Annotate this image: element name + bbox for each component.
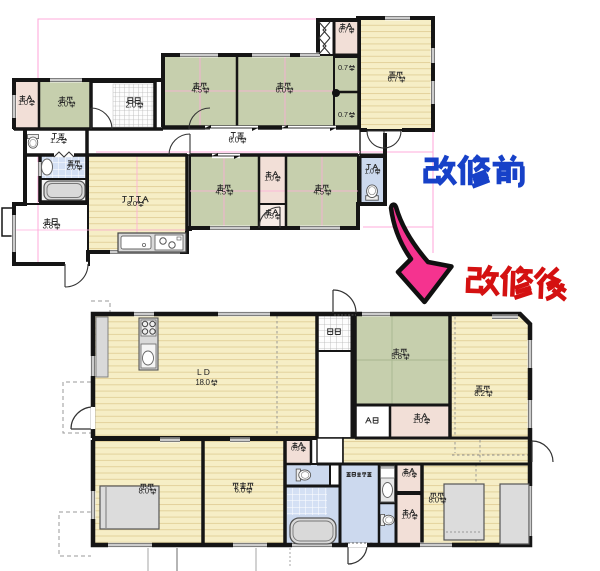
svg-text:1.0: 1.0 [18, 98, 28, 107]
svg-text:1.0: 1.0 [264, 174, 274, 183]
svg-text:1.0: 1.0 [413, 416, 423, 425]
svg-text:3.8: 3.8 [42, 222, 53, 231]
svg-text:2.0: 2.0 [66, 164, 75, 171]
svg-text:8.2: 8.2 [474, 389, 485, 398]
svg-text:4.5: 4.5 [215, 188, 226, 197]
svg-text:0.5: 0.5 [264, 212, 274, 221]
svg-text:4.5: 4.5 [313, 188, 324, 197]
svg-text:8.0: 8.0 [127, 199, 137, 208]
svg-text:18.0: 18.0 [195, 378, 210, 387]
svg-text:6.0: 6.0 [234, 486, 245, 495]
svg-text:1.0: 1.0 [401, 512, 411, 521]
svg-text:0.7: 0.7 [338, 63, 348, 72]
svg-text:1.0: 1.0 [364, 168, 373, 175]
svg-text:2.0: 2.0 [125, 101, 136, 110]
svg-text:3.0: 3.0 [57, 100, 68, 109]
svg-text:1.2: 1.2 [50, 136, 60, 145]
svg-text:6.0: 6.0 [275, 86, 286, 95]
svg-text:6.0: 6.0 [228, 136, 239, 145]
svg-text:8.0: 8.0 [138, 487, 149, 496]
svg-text:0.5: 0.5 [402, 472, 411, 479]
svg-text:5.8: 5.8 [391, 352, 402, 361]
svg-text:0.5: 0.5 [291, 446, 300, 453]
svg-text:8.0: 8.0 [428, 496, 439, 505]
svg-text:6.7: 6.7 [387, 75, 398, 84]
svg-text:4.5: 4.5 [191, 86, 202, 95]
svg-text:L D: L D [197, 367, 210, 377]
svg-text:0.7: 0.7 [338, 110, 348, 119]
svg-text:0.7: 0.7 [338, 27, 347, 34]
